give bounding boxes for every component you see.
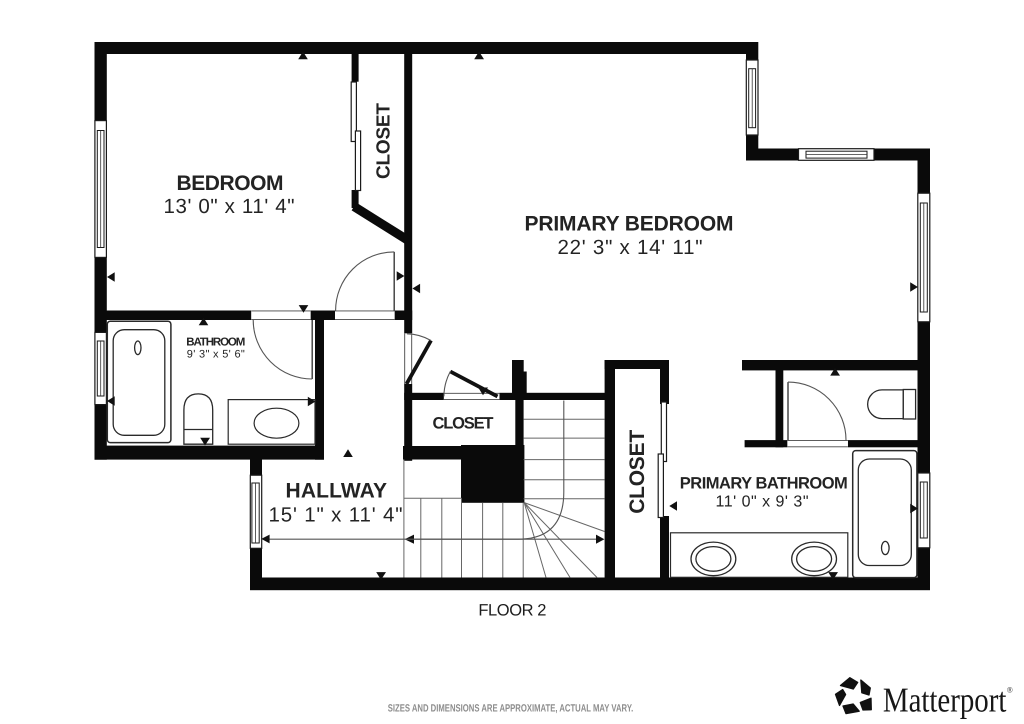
- svg-text:PRIMARY BATHROOM: PRIMARY BATHROOM: [680, 474, 848, 492]
- svg-text:CLOSET: CLOSET: [433, 414, 494, 432]
- svg-text:22' 3" x 14' 11": 22' 3" x 14' 11": [558, 236, 703, 259]
- svg-text:HALLWAY: HALLWAY: [286, 480, 388, 503]
- svg-text:®: ®: [1007, 686, 1013, 695]
- svg-text:9' 3" x 5' 6": 9' 3" x 5' 6": [187, 348, 245, 360]
- svg-text:PRIMARY BEDROOM: PRIMARY BEDROOM: [525, 213, 734, 236]
- svg-text:13' 0" x 11' 4": 13' 0" x 11' 4": [164, 195, 295, 218]
- svg-text:BEDROOM: BEDROOM: [177, 172, 284, 195]
- svg-text:FLOOR 2: FLOOR 2: [478, 601, 546, 619]
- svg-text:CLOSET: CLOSET: [626, 430, 649, 514]
- svg-text:BATHROOM: BATHROOM: [186, 337, 245, 349]
- svg-text:11' 0" x 9' 3": 11' 0" x 9' 3": [716, 494, 809, 511]
- svg-text:SIZES AND DIMENSIONS ARE APPRO: SIZES AND DIMENSIONS ARE APPROXIMATE, AC…: [388, 703, 634, 715]
- svg-text:CLOSET: CLOSET: [374, 103, 395, 179]
- svg-text:15' 1" x 11' 4": 15' 1" x 11' 4": [269, 503, 403, 526]
- svg-text:Matterport: Matterport: [883, 681, 1007, 720]
